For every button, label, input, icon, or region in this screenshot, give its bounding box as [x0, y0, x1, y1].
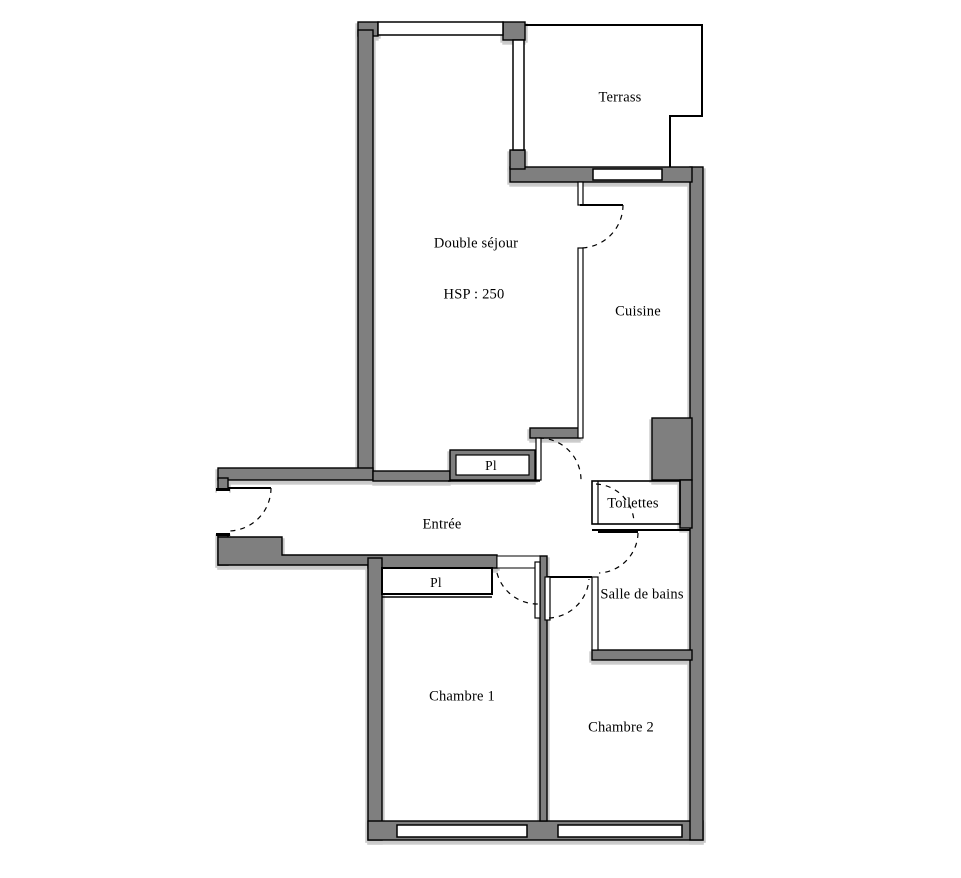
room-label-hsp: HSP : 250: [444, 287, 505, 304]
room-label-entry: Entrée: [422, 517, 461, 534]
wall-segment: [578, 248, 583, 438]
walls-layer: [218, 22, 703, 840]
wall-segment: [578, 182, 583, 205]
wall-segment: [592, 650, 692, 660]
wall-segment: [218, 537, 497, 568]
room-label-closet-bedroom1: Pl: [430, 575, 442, 591]
room-label-bedroom1: Chambre 1: [429, 689, 495, 706]
room-label-terrace: Terrass: [598, 90, 641, 107]
wall-segment: [218, 468, 373, 480]
wall-segment: [368, 558, 382, 840]
room-label-toilets: Toilettes: [607, 496, 659, 513]
room-label-closet-living: Pl: [485, 458, 497, 474]
door-kitchen: [580, 205, 623, 248]
room-label-bedroom2: Chambre 2: [588, 720, 654, 737]
window-bedroom2: [558, 825, 682, 837]
room-label-living: Double séjour: [434, 236, 518, 253]
door-entrance: [216, 488, 271, 536]
wall-segment: [680, 480, 692, 528]
room-label-bathroom: Salle de bains: [600, 587, 683, 604]
window-living-terrace: [513, 40, 524, 150]
wall-segment: [652, 418, 692, 480]
wall-segment: [510, 150, 525, 169]
door-bathroom: [598, 532, 638, 573]
floor-plan-canvas: Terrass Double séjour HSP : 250 Cuisine …: [0, 0, 961, 878]
door-bedroom2: [545, 577, 589, 620]
wall-segment: [358, 30, 373, 472]
floor-plan-drawing: [0, 0, 961, 878]
window-bedroom1: [397, 825, 527, 837]
door-bedroom1: [497, 556, 540, 618]
door-living-hall: [536, 438, 581, 480]
wall-segment: [503, 22, 525, 40]
bathroom-left-wall: [592, 577, 598, 650]
room-label-kitchen: Cuisine: [615, 304, 661, 321]
window-living-top: [378, 22, 503, 35]
wall-segment: [530, 428, 580, 438]
window-terrace-kitchen: [593, 169, 662, 180]
wall-segment: [373, 471, 450, 481]
